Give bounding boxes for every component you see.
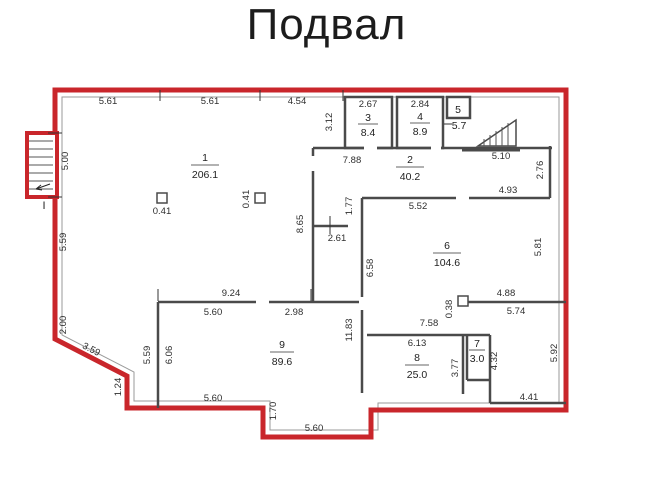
dim-below-landing: 4.93 <box>499 185 518 196</box>
room8-area: 25.0 <box>407 369 428 381</box>
room2-area: 40.2 <box>400 171 421 183</box>
room6-area: 104.6 <box>434 257 460 269</box>
room-label-7: 7 3.0 <box>469 338 485 365</box>
room2-number: 2 <box>407 154 413 166</box>
dim-room4-width: 2.84 <box>411 99 430 110</box>
room-label-1: 1 206.1 <box>191 152 219 181</box>
dim-room9-left-inner: 6.06 <box>164 346 175 365</box>
room6-number: 6 <box>444 240 450 252</box>
dim-room9-above: 9.24 <box>222 288 241 299</box>
dim-room8-right: 3.77 <box>450 359 461 378</box>
room7-number: 7 <box>474 338 480 350</box>
dim-bottom-middle: 5.60 <box>305 423 324 434</box>
dim-left-upper: 5.59 <box>58 233 69 252</box>
dim-left-middle: 2.00 <box>58 316 69 335</box>
dim-room7-right: 4.32 <box>489 352 500 371</box>
floor-plan-page: Подвал <box>0 0 653 489</box>
dim-stub: 2.61 <box>328 233 347 244</box>
room1-area: 206.1 <box>192 169 218 181</box>
room9-number: 9 <box>279 339 285 351</box>
dim-wall-e-top: 1.77 <box>344 197 355 216</box>
dim-room6-top: 5.52 <box>409 201 428 212</box>
room-label-4: 4 8.9 <box>410 111 430 138</box>
left-staircase <box>27 133 57 197</box>
dim-room9-left-outer: 5.59 <box>142 346 153 365</box>
dim-step-height: 1.70 <box>268 402 279 421</box>
dim-left-stair: 5.00 <box>60 152 71 171</box>
dim-room9-top-left: 5.60 <box>204 307 223 318</box>
room5-area: 5.7 <box>452 120 467 132</box>
dim-room6-right: 5.81 <box>533 238 544 257</box>
dim-bottom-right-side: 5.92 <box>549 344 560 363</box>
room9-area: 89.6 <box>272 356 293 368</box>
room3-number: 3 <box>365 112 371 124</box>
column-1 <box>157 193 167 203</box>
room7-area: 3.0 <box>470 353 485 365</box>
dim-column-2: 0.41 <box>241 190 252 209</box>
room5-number: 5 <box>455 104 461 116</box>
dim-room3-height: 3.12 <box>324 113 335 132</box>
room4-number: 4 <box>417 111 423 123</box>
dim-room3-width: 2.67 <box>359 99 378 110</box>
column-2 <box>255 193 265 203</box>
room3-area: 8.4 <box>361 127 376 139</box>
column-3 <box>458 296 468 306</box>
room8-number: 8 <box>414 352 420 364</box>
dim-column-3: 0.38 <box>444 300 455 319</box>
dim-room8-above: 7.58 <box>420 318 439 329</box>
room-label-9: 9 89.6 <box>270 339 294 368</box>
dim-room9-bottom: 5.60 <box>204 393 223 404</box>
room4-area: 8.9 <box>413 126 428 138</box>
room1-number: 1 <box>202 152 208 164</box>
dim-room9-right: 11.83 <box>344 318 355 341</box>
room-label-2: 2 40.2 <box>396 154 424 183</box>
floor-plan-svg: I 5.61 5.61 4.54 2.67 2.84 7.88 2.61 5.1… <box>0 0 653 489</box>
dim-room6-bottom: 4.88 <box>497 288 516 299</box>
dim-top-1: 5.61 <box>99 96 118 107</box>
dim-room6-left: 6.58 <box>365 259 376 278</box>
dim-column-1: 0.41 <box>153 206 172 217</box>
dim-left-small: 1.24 <box>113 378 124 397</box>
dim-center-wall: 8.65 <box>295 215 306 234</box>
room-label-8: 8 25.0 <box>405 352 429 381</box>
dim-landing-height: 2.76 <box>535 161 546 180</box>
dim-top-2: 5.61 <box>201 96 220 107</box>
room-label-3: 3 8.4 <box>358 112 378 139</box>
dim-below-room3: 7.88 <box>343 155 362 166</box>
dim-corridor-top: 5.74 <box>507 306 526 317</box>
dim-landing-width: 5.10 <box>492 151 511 162</box>
dim-room8-top: 6.13 <box>408 338 427 349</box>
dim-top-3: 4.54 <box>288 96 307 107</box>
room-label-6: 6 104.6 <box>433 240 461 269</box>
dim-bottom-right: 4.41 <box>520 392 539 403</box>
dim-room9-top-right: 2.98 <box>285 307 304 318</box>
top-right-staircase <box>462 120 520 150</box>
entrance-marker: I <box>42 200 45 212</box>
